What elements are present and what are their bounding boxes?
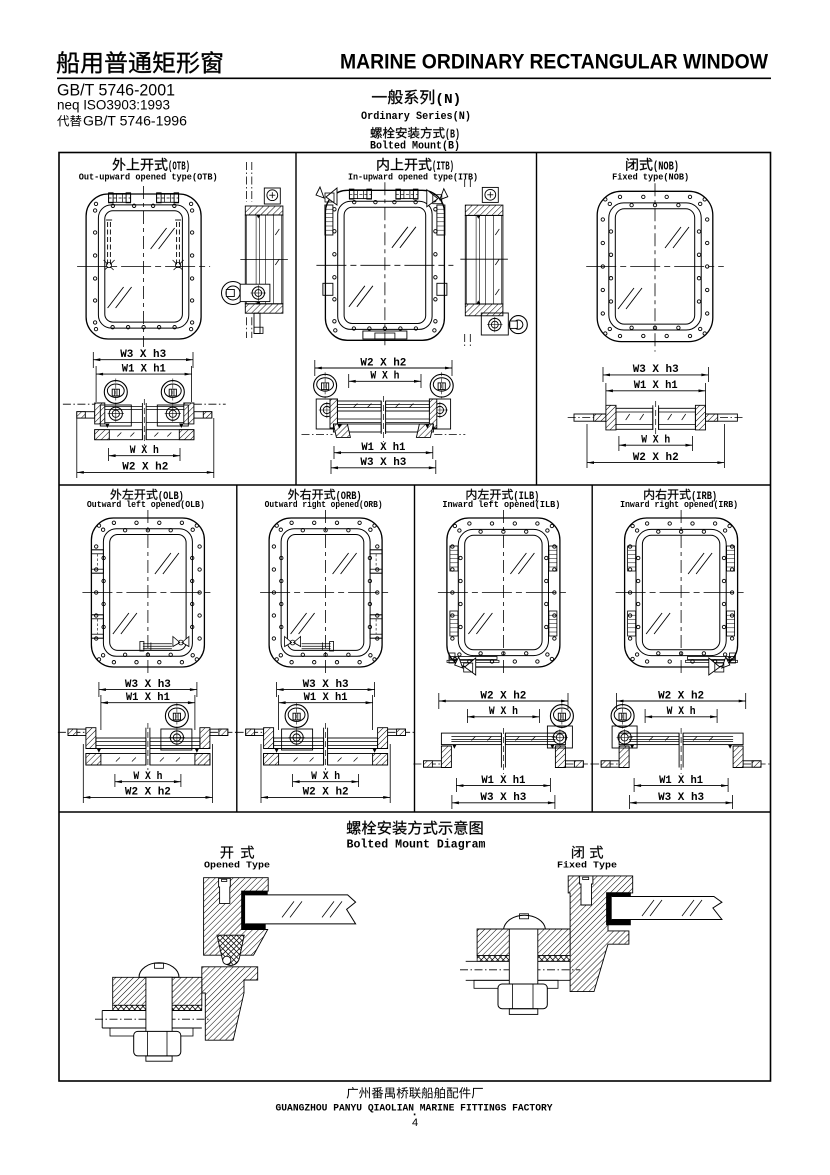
svg-text:W3 X h3: W3 X h3 bbox=[480, 792, 526, 804]
svg-text:W X h: W X h bbox=[667, 706, 696, 718]
svg-text:4: 4 bbox=[412, 1117, 418, 1129]
svg-text:W2 X h2: W2 X h2 bbox=[658, 690, 704, 702]
svg-text:Opened Type: Opened Type bbox=[204, 859, 270, 870]
svg-text:W3 X h3: W3 X h3 bbox=[303, 679, 349, 691]
svg-text:Ordinary Series(N): Ordinary Series(N) bbox=[361, 111, 471, 123]
svg-text:W1 X h1: W1 X h1 bbox=[361, 442, 405, 454]
svg-text:W X h: W X h bbox=[311, 771, 340, 783]
svg-text:(N): (N) bbox=[435, 92, 461, 108]
svg-text:W2 X h2: W2 X h2 bbox=[633, 452, 679, 464]
svg-text:W3 X h3: W3 X h3 bbox=[360, 457, 406, 469]
svg-text:W3 X h3: W3 X h3 bbox=[125, 679, 171, 691]
svg-text:Bolted Mount Diagram: Bolted Mount Diagram bbox=[347, 839, 486, 852]
svg-text:W2 X h2: W2 X h2 bbox=[480, 690, 526, 702]
svg-text:Outward right opened(ORB): Outward right opened(ORB) bbox=[265, 500, 383, 510]
svg-text:W X h: W X h bbox=[489, 706, 518, 718]
svg-text:Inward left opened(ILB): Inward left opened(ILB) bbox=[442, 500, 560, 510]
svg-text:In-upward opened type(ITB): In-upward opened type(ITB) bbox=[348, 172, 478, 183]
svg-text:W1 X h1: W1 X h1 bbox=[122, 363, 166, 375]
svg-text:Out-upward opened type(OTB): Out-upward opened type(OTB) bbox=[79, 172, 218, 183]
svg-text:Inward right opened(IRB): Inward right opened(IRB) bbox=[620, 500, 738, 510]
svg-text:W2 X h2: W2 X h2 bbox=[122, 461, 168, 473]
svg-text:W X h: W X h bbox=[133, 771, 162, 783]
svg-text:W X h: W X h bbox=[641, 435, 670, 447]
svg-text:Bolted Mount(B): Bolted Mount(B) bbox=[370, 141, 460, 153]
svg-text:W X h: W X h bbox=[130, 445, 159, 457]
svg-text:neq ISO3903:1993: neq ISO3903:1993 bbox=[57, 98, 170, 113]
svg-text:W1 X h1: W1 X h1 bbox=[304, 692, 348, 704]
svg-text:Fixed Type: Fixed Type bbox=[557, 859, 617, 870]
svg-text:W1 X h1: W1 X h1 bbox=[126, 692, 170, 704]
svg-text:W2 X h2: W2 X h2 bbox=[125, 787, 171, 799]
svg-text:W3 X h3: W3 X h3 bbox=[120, 349, 166, 361]
svg-text:W X h: W X h bbox=[370, 371, 399, 383]
svg-text:W3 X h3: W3 X h3 bbox=[633, 364, 679, 376]
svg-text:GUANGZHOU PANYU QIAOLIAN MARIN: GUANGZHOU PANYU QIAOLIAN MARINE FITTINGS… bbox=[276, 1104, 553, 1115]
svg-text:W1 X h1: W1 X h1 bbox=[634, 380, 678, 392]
svg-text:Outward left opened(OLB): Outward left opened(OLB) bbox=[87, 500, 205, 510]
svg-text:(B): (B) bbox=[445, 128, 460, 142]
svg-text:W2 X h2: W2 X h2 bbox=[303, 787, 349, 799]
svg-text:W3 X h3: W3 X h3 bbox=[658, 792, 704, 804]
svg-text:Fixed type(NOB): Fixed type(NOB) bbox=[612, 172, 689, 183]
svg-text:W2 X h2: W2 X h2 bbox=[360, 357, 406, 369]
svg-text:MARINE ORDINARY RECTANGULAR WI: MARINE ORDINARY RECTANGULAR WINDOW bbox=[340, 51, 768, 74]
svg-text:W1 X h1: W1 X h1 bbox=[659, 775, 703, 787]
svg-text:W1 X h1: W1 X h1 bbox=[481, 775, 525, 787]
svg-text:GB/T 5746-1996: GB/T 5746-1996 bbox=[83, 114, 187, 129]
